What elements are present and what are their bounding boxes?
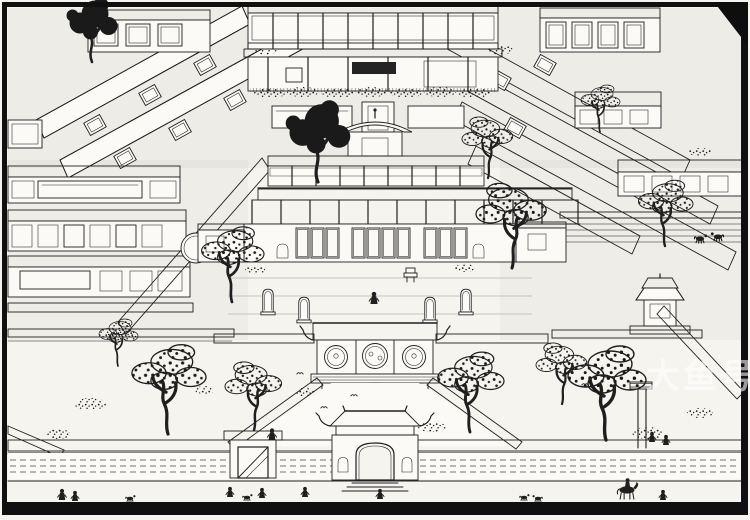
hall-plaque	[352, 62, 396, 74]
frame-bottom	[2, 502, 748, 515]
round-window	[325, 346, 348, 369]
shrub	[245, 266, 265, 274]
frame-top	[2, 2, 748, 7]
shrub	[46, 429, 70, 439]
watermark-text: 大鱼号	[646, 357, 750, 397]
shrub	[687, 408, 713, 418]
shrub	[74, 398, 106, 410]
engraving-scene: Woodblock-style engraving: bird's-eye vi…	[0, 0, 750, 520]
round-window	[363, 344, 388, 369]
engraving-svg: Woodblock-style engraving: bird's-eye vi…	[0, 0, 750, 520]
stone-tablet	[459, 289, 473, 315]
shrub	[688, 148, 712, 156]
round-window	[403, 346, 426, 369]
stone-tablet	[423, 297, 437, 323]
shrub	[195, 386, 215, 394]
shrub	[455, 264, 475, 272]
shrub	[418, 422, 446, 432]
frame-left	[2, 2, 7, 514]
shrub	[632, 427, 664, 439]
frame-right	[741, 2, 748, 514]
stone-tablet	[297, 297, 311, 323]
stone-tablet	[261, 289, 275, 315]
